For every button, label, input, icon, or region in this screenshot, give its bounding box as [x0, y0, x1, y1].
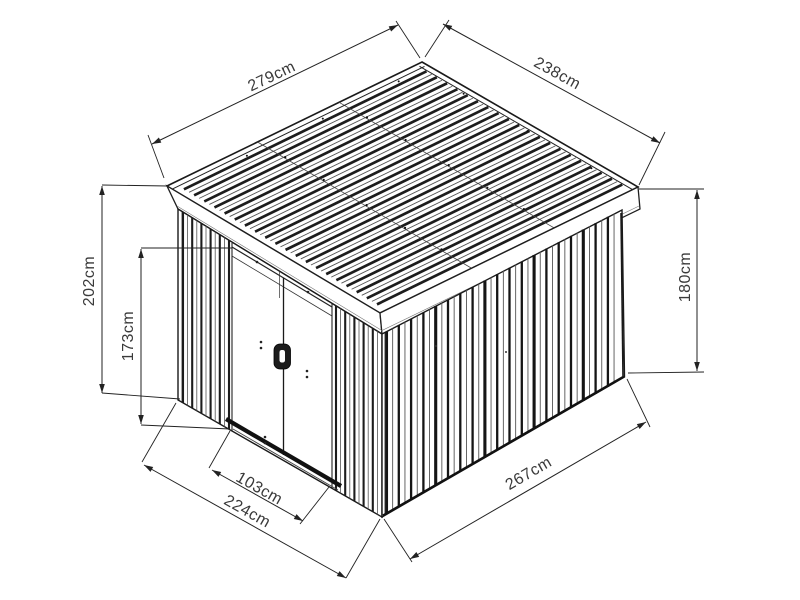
screw-dot: [435, 345, 437, 347]
screw-dot: [306, 370, 309, 373]
screw-dot: [264, 442, 267, 445]
screw-dot: [260, 341, 263, 344]
screw-dot: [307, 291, 310, 294]
door-handle-slot: [280, 350, 286, 363]
dim-label-left-corner-height: 202cm: [81, 256, 98, 307]
screw-dot: [448, 164, 450, 166]
shed-isometric-technical-drawing: 279cm 238cm 202cm 173cm 180cm 103cm 224c…: [0, 0, 800, 600]
screw-dot: [590, 167, 592, 169]
screw-dot: [398, 80, 400, 82]
screw-dot: [527, 130, 529, 132]
screw-dot: [404, 227, 406, 229]
screw-dot: [284, 156, 286, 158]
screw-dot: [405, 139, 407, 141]
screw-dot: [322, 118, 324, 120]
screw-dot: [246, 155, 248, 157]
screw-dot: [306, 376, 309, 379]
screw-dot: [440, 248, 442, 250]
screw-dot: [264, 436, 267, 439]
screw-dot: [505, 351, 507, 353]
dim-label-rear-corner-height: 180cm: [677, 252, 694, 303]
screw-dot: [260, 347, 263, 350]
screw-dot: [463, 93, 465, 95]
screw-dot: [486, 187, 488, 189]
screw-dot: [365, 204, 367, 206]
dim-label-door-height: 173cm: [120, 311, 137, 362]
screw-dot: [523, 208, 525, 210]
screw-dot: [256, 261, 259, 264]
screw-dot: [366, 116, 368, 118]
screw-dot: [323, 179, 325, 181]
